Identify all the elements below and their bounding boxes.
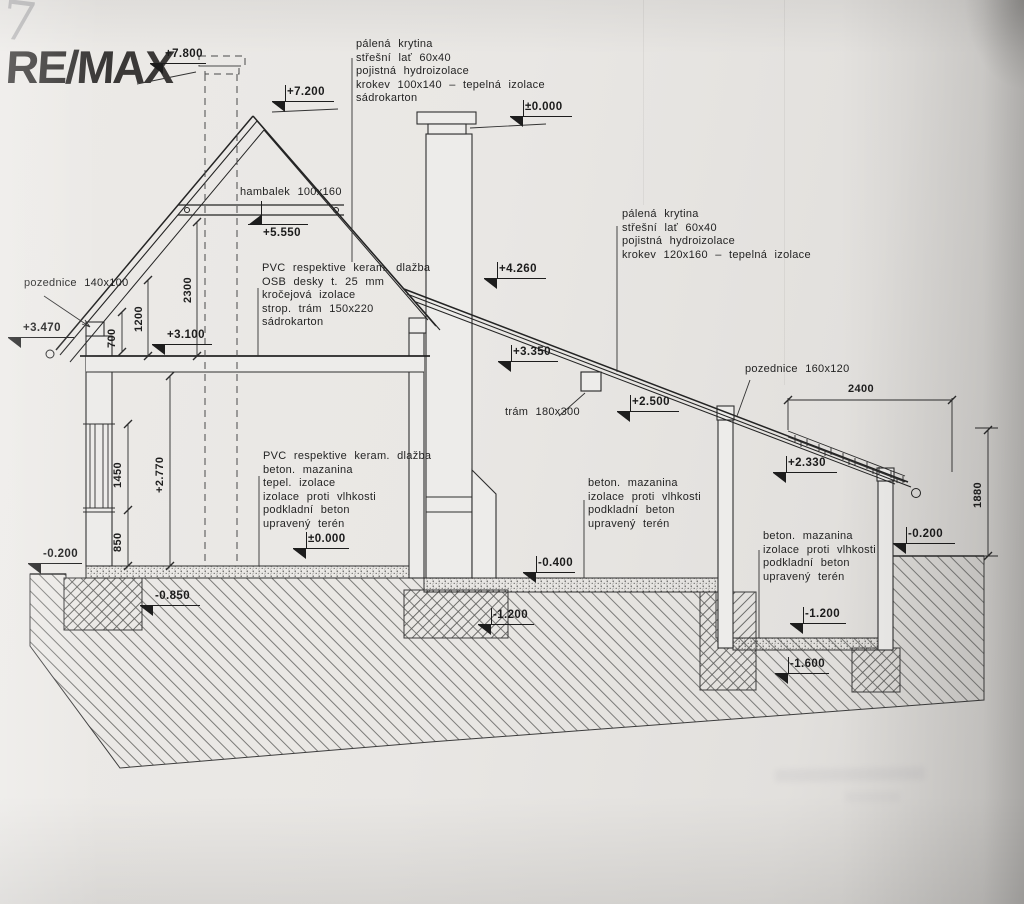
- elevation-marker-2500: +2.500: [617, 396, 679, 412]
- ceiling-notes: PVC respektive keram. dlažba OSB desky t…: [262, 262, 430, 330]
- scanned-floor-section-plan: 7 RE/MAX +7.800 +7.200 ±0.000 +5.550 +3.…: [0, 0, 1024, 904]
- bleed-through-smudge: [845, 792, 900, 802]
- elevation-marker-4260: +4.260: [484, 263, 546, 279]
- roof-low-notes: pálená krytina střešní lať 60x40 pojistn…: [622, 208, 811, 262]
- dim-1450: 1450: [112, 462, 124, 488]
- dim-2400: 2400: [848, 383, 874, 395]
- elevation-marker-5550: +5.550: [248, 224, 308, 240]
- dim-1880: 1880: [972, 482, 984, 508]
- pozednice-right-label: pozednice 160x120: [745, 363, 850, 377]
- chimney: [426, 134, 472, 578]
- bleed-through-smudge: [775, 767, 925, 783]
- elevation-marker-0850: -0.850: [140, 590, 200, 606]
- floor-main-notes: PVC respektive keram. dlažba beton. maza…: [263, 450, 431, 531]
- roof-main-notes: pálená krytina střešní lať 60x40 pojistn…: [356, 38, 545, 106]
- dim-2770: +2.770: [154, 457, 166, 493]
- elevation-marker-7800: +7.800: [150, 48, 206, 64]
- dim-2300: 2300: [182, 277, 194, 303]
- elevation-marker-1600: -1.600: [775, 658, 829, 674]
- gutter-left: [46, 350, 54, 358]
- fold-line: [784, 0, 785, 385]
- elevation-marker-7200: +7.200: [272, 86, 334, 102]
- gutter-right: [912, 489, 921, 498]
- purlin: [581, 372, 601, 391]
- elevation-marker-0400: -0.400: [523, 557, 575, 573]
- tram-label: trám 180x300: [505, 406, 580, 420]
- attic-floor: [80, 356, 430, 372]
- dim-1200: 1200: [133, 306, 145, 332]
- chimney-cap: [417, 112, 476, 124]
- hidden-chimney-dashed: [199, 56, 245, 565]
- elevation-marker-0200-right: -0.200: [893, 528, 955, 544]
- elevation-marker-3350: +3.350: [498, 346, 558, 362]
- elevation-marker-3100: +3.100: [152, 329, 212, 345]
- elevation-marker-1200-right: -1.200: [790, 608, 846, 624]
- elevation-marker-0200-left: -0.200: [28, 548, 82, 564]
- floor-mid-notes: beton. mazanina izolace proti vlhkosti p…: [588, 477, 701, 531]
- elevation-marker-3470: +3.470: [8, 322, 74, 338]
- floor-right-notes: beton. mazanina izolace proti vlhkosti p…: [763, 530, 876, 584]
- pozednice-left-label: pozednice 140x100: [24, 277, 129, 291]
- roof-lines: [46, 116, 921, 498]
- fold-line: [643, 0, 644, 205]
- elevation-marker-2330: +2.330: [773, 457, 837, 473]
- dim-700: 700: [106, 328, 118, 348]
- elevation-marker-0000-floor: ±0.000: [293, 533, 349, 549]
- elevation-marker-1200-mid: -1.200: [478, 609, 534, 625]
- hambalek-label: hambalek 100x160: [240, 186, 342, 200]
- dim-850: 850: [112, 532, 124, 552]
